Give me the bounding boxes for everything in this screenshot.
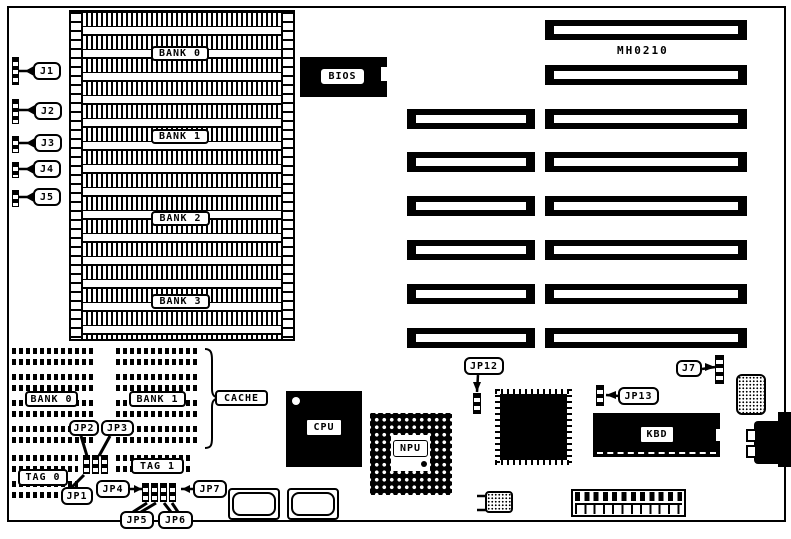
cache-bank-0-label: BANK 0 bbox=[25, 391, 78, 407]
bios-label: BIOS bbox=[320, 68, 365, 85]
chipset-qfp-chip bbox=[495, 389, 572, 465]
socket-placeholder-1 bbox=[228, 488, 280, 520]
j1-jumper-block bbox=[12, 57, 19, 85]
memory-bank-3-label: BANK 3 bbox=[151, 294, 210, 309]
tag-1-label: TAG 1 bbox=[131, 458, 184, 474]
kbd-socket-dashes bbox=[597, 452, 716, 454]
cpu-chip: CPU bbox=[286, 391, 362, 467]
memory-bank-2-label: BANK 2 bbox=[151, 211, 210, 226]
tag-0-label: TAG 0 bbox=[18, 469, 68, 486]
cpu-label: CPU bbox=[306, 419, 342, 436]
isa-slot-long-1 bbox=[545, 20, 747, 40]
j4-label: J4 bbox=[33, 160, 61, 178]
isa-slot-long-8 bbox=[545, 328, 747, 348]
jp5-jumper-block bbox=[151, 483, 158, 502]
bios-chip: BIOS bbox=[300, 57, 387, 97]
jp6-jp7-jumper-block bbox=[169, 483, 176, 502]
jp7-label: JP7 bbox=[193, 480, 227, 498]
j2-label: J2 bbox=[34, 102, 62, 120]
din-pin-2 bbox=[746, 445, 757, 458]
keyboard-din-connector bbox=[754, 421, 778, 464]
din-pin-1 bbox=[746, 429, 757, 442]
connector-pad bbox=[736, 374, 766, 415]
board-model-label: MH0210 bbox=[617, 44, 669, 57]
simm-right-rail bbox=[281, 12, 293, 339]
jp6-jumper-block bbox=[160, 483, 167, 502]
jp1-label: JP1 bbox=[61, 487, 93, 505]
npu-center: NPU bbox=[391, 435, 430, 471]
kbd-label: KBD bbox=[640, 426, 674, 443]
jp12-jumper-block bbox=[473, 393, 481, 414]
cache-label: CACHE bbox=[215, 390, 268, 406]
isa-slot-long-4 bbox=[545, 152, 747, 172]
memory-bank-1-label: BANK 1 bbox=[151, 129, 209, 144]
power-box-row bbox=[575, 503, 682, 514]
jp3-label: JP3 bbox=[101, 420, 134, 436]
bios-chip-notch bbox=[381, 67, 387, 81]
j7-jumper-block bbox=[715, 355, 724, 384]
cpu-pin1-dot bbox=[292, 397, 300, 405]
isa-slot-short-6 bbox=[407, 328, 535, 348]
isa-slot-long-7 bbox=[545, 284, 747, 304]
jp13-jumper-block bbox=[596, 385, 604, 406]
npu-label: NPU bbox=[393, 440, 428, 457]
socket-placeholder-2 bbox=[287, 488, 339, 520]
isa-slot-short-3 bbox=[407, 196, 535, 216]
isa-slot-short-1 bbox=[407, 109, 535, 129]
jp5-label: JP5 bbox=[120, 511, 154, 529]
j5-jumper-block bbox=[12, 190, 19, 207]
j7-label: J7 bbox=[676, 360, 702, 377]
motherboard-diagram: BANK 0 BANK 1 BANK 2 BANK 3 J1 J2 J3 J4 … bbox=[0, 0, 791, 539]
j1-label: J1 bbox=[33, 62, 61, 80]
isa-slot-long-3 bbox=[545, 109, 747, 129]
isa-slot-long-2 bbox=[545, 65, 747, 85]
isa-slot-short-5 bbox=[407, 284, 535, 304]
isa-slot-short-4 bbox=[407, 240, 535, 260]
jp2-jumper-block bbox=[83, 455, 90, 474]
jp2-label: JP2 bbox=[69, 420, 99, 436]
isa-slot-short-2 bbox=[407, 152, 535, 172]
kbd-chip-notch bbox=[716, 429, 720, 441]
jp12-label: JP12 bbox=[464, 357, 504, 375]
power-pins-row bbox=[575, 492, 682, 501]
cache-bank-1-label: BANK 1 bbox=[129, 391, 186, 407]
crystal-oscillator bbox=[485, 491, 513, 513]
isa-slot-long-6 bbox=[545, 240, 747, 260]
jp4-label: JP4 bbox=[96, 480, 130, 498]
jp4-jp5-jumper-block bbox=[142, 483, 149, 502]
isa-slot-long-5 bbox=[545, 196, 747, 216]
jp3-jumper-block bbox=[92, 455, 99, 474]
j5-label: J5 bbox=[33, 188, 61, 206]
j2-jumper-block bbox=[12, 99, 19, 124]
kbd-chip: KBD bbox=[593, 413, 720, 457]
jp1-jumper-block bbox=[101, 455, 108, 474]
j3-label: J3 bbox=[34, 134, 62, 152]
memory-bank-0-label: BANK 0 bbox=[151, 46, 209, 61]
power-connector bbox=[571, 489, 686, 517]
jp13-label: JP13 bbox=[618, 387, 659, 405]
npu-socket: NPU bbox=[370, 413, 452, 495]
j4-jumper-block bbox=[12, 162, 19, 178]
j3-jumper-block bbox=[12, 136, 19, 153]
npu-pin1-dot bbox=[421, 461, 427, 467]
simm-left-rail bbox=[71, 12, 83, 339]
keyboard-din-edge bbox=[778, 412, 791, 467]
jp6-label: JP6 bbox=[158, 511, 193, 529]
